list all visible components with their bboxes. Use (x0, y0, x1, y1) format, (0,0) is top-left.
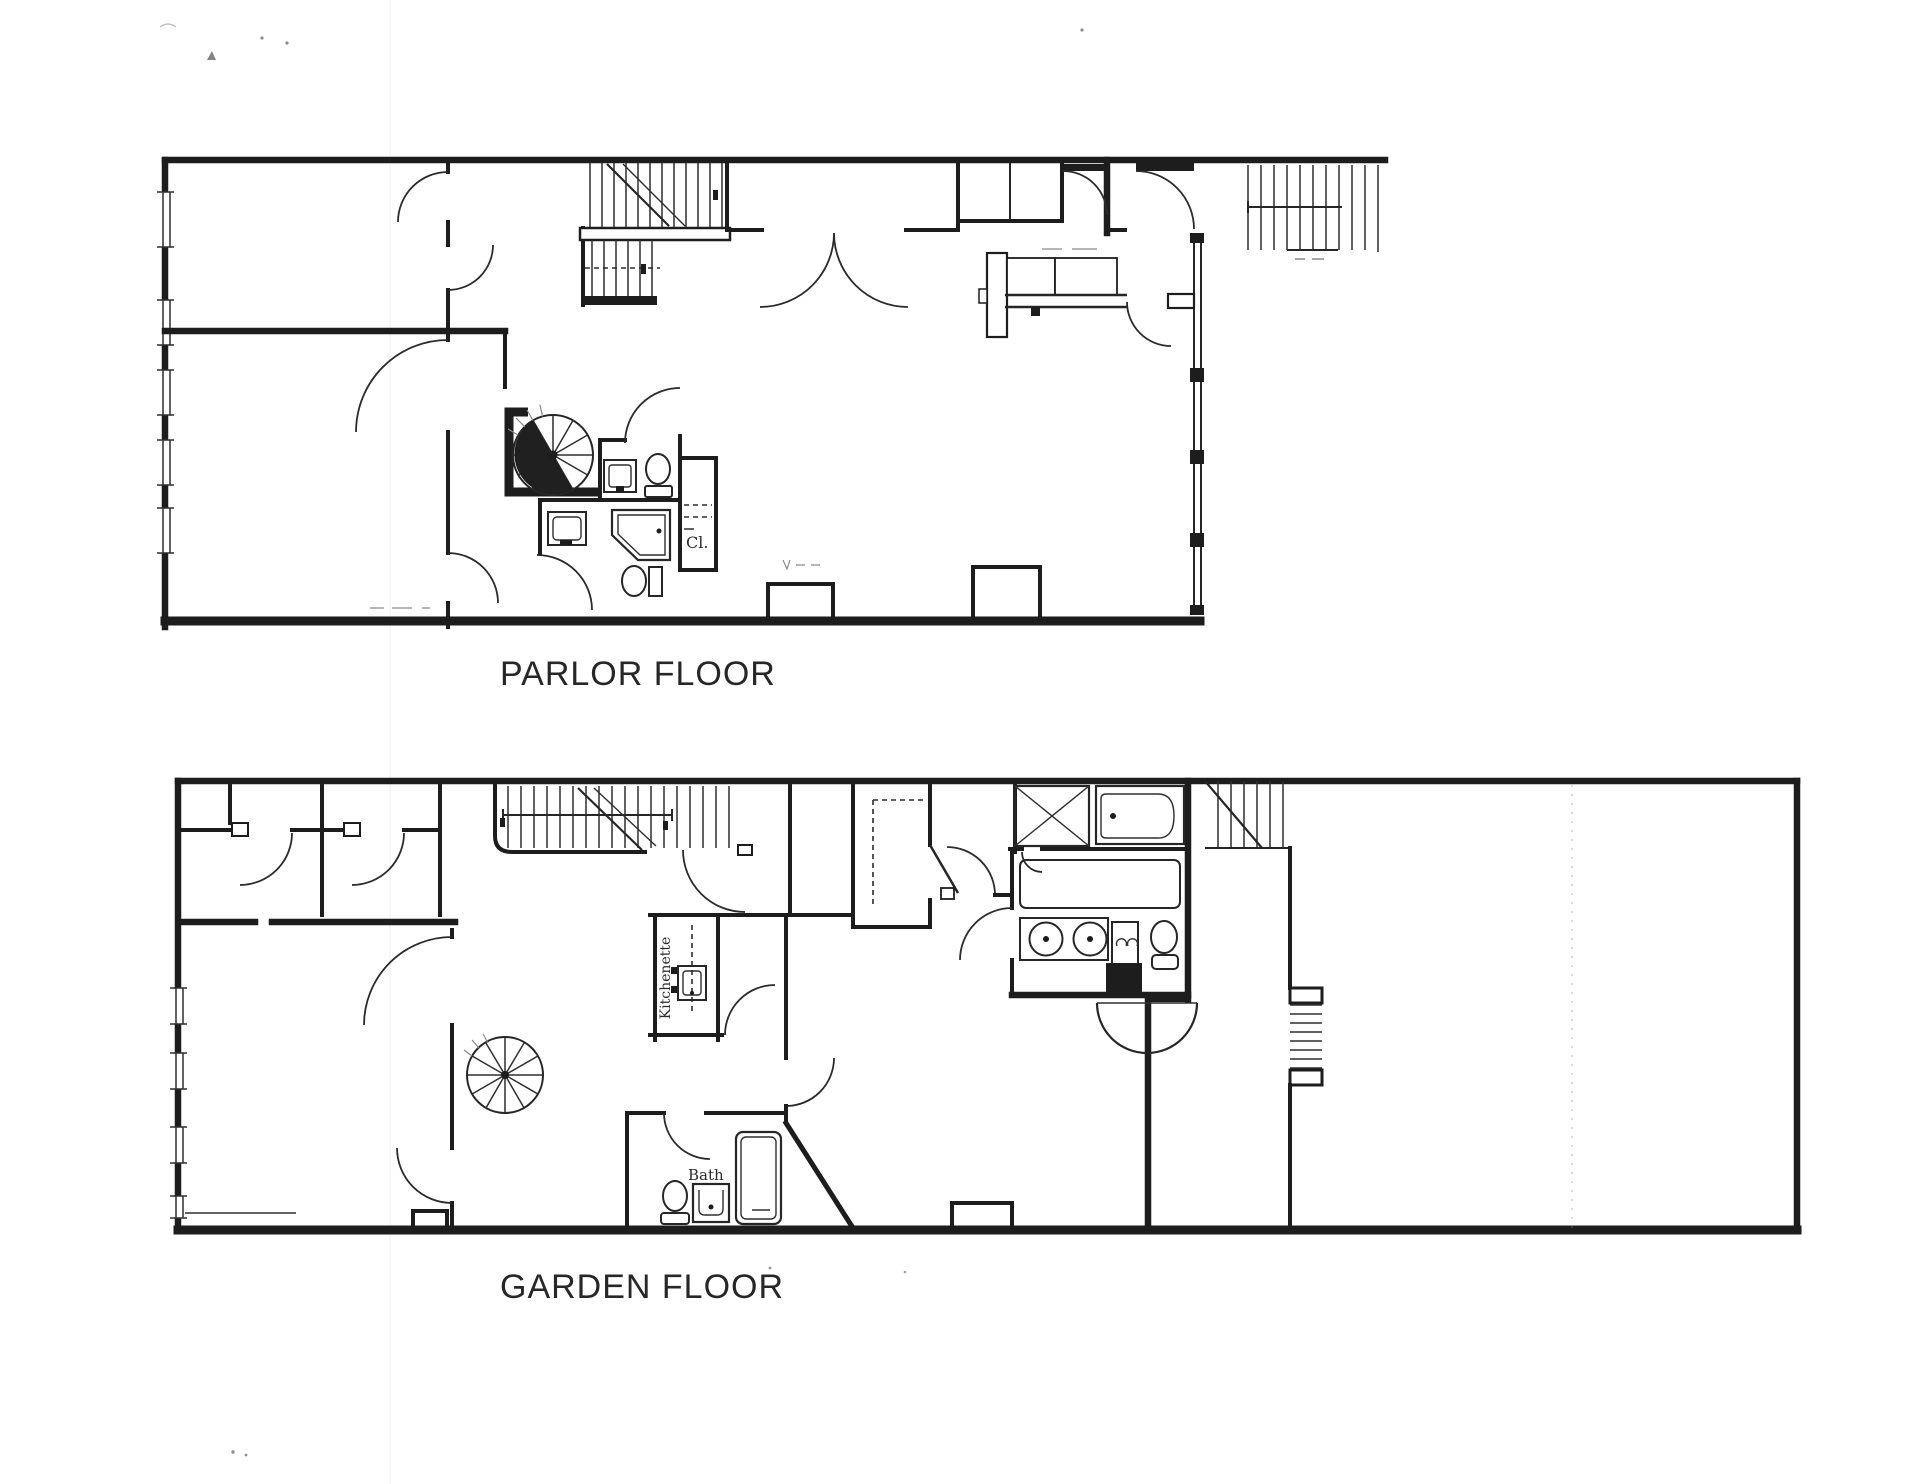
kitchenette-garden: Kitchenette (650, 915, 790, 1058)
scanned-floor-plan-page: { "background": "#ffffff", "ink": "#1f1f… (0, 0, 1920, 1484)
closet-label: Cl. (686, 533, 708, 552)
toilet-icon (645, 454, 672, 497)
main-staircase-icon-parlor (580, 160, 730, 305)
sink-icon (604, 460, 636, 492)
master-bath-garden (960, 783, 1197, 1053)
center-rooms-garden (364, 930, 853, 1228)
bathtub-icon (736, 1132, 781, 1224)
bathroom-parlor (537, 500, 680, 610)
stoop-stairs-icon-parlor (1248, 165, 1378, 259)
sink-icon (548, 512, 586, 545)
bathtub-icon (1096, 786, 1184, 844)
bath-room-garden: Bath (627, 1113, 786, 1226)
exterior-walls-garden (178, 781, 1797, 1230)
floor-title-garden: GARDEN FLOOR (500, 1268, 784, 1306)
front-closets-garden (183, 786, 455, 922)
sink-icon (671, 966, 706, 1000)
vanity-mirror (1020, 860, 1180, 908)
hall-closet-parlor (958, 160, 1062, 227)
toilet-icon (1151, 921, 1178, 969)
double-vanity-sinks (1020, 918, 1108, 960)
closet-cl-parlor: Cl. (680, 458, 716, 570)
rear-yard-garden (185, 781, 1572, 1230)
wardrobe-unit-parlor (979, 249, 1194, 346)
cabinet-icon (1112, 922, 1138, 966)
hall-wall-double-doors-parlor (727, 230, 958, 307)
floor-plan-document: Cl. PARLOR FLOOR (0, 0, 1920, 1484)
yard-side-steps-icon (1290, 848, 1322, 1230)
bath-label: Bath (688, 1166, 724, 1184)
wall-fill (1106, 963, 1142, 993)
window-wall-right-parlor (1190, 233, 1204, 615)
spiral-stair-icon-parlor (508, 405, 601, 495)
floor-plan-garden: Kitchenette (170, 781, 1797, 1306)
sink-icon (693, 1184, 729, 1222)
scan-artifacts (160, 0, 1084, 1484)
kitchenette-label: Kitchenette (658, 937, 674, 1020)
wc-room-parlor (600, 388, 680, 570)
toilet-icon (661, 1181, 689, 1224)
faint-marks-parlor (370, 560, 820, 608)
main-staircase-icon-garden (495, 786, 853, 915)
exterior-stairs-icon (1205, 781, 1290, 848)
floor-title-parlor: PARLOR FLOOR (500, 655, 776, 693)
vestibule-entry-parlor (1063, 160, 1194, 233)
door-arcs-left-parlor (356, 172, 498, 603)
floor-plan-parlor: Cl. PARLOR FLOOR (157, 160, 1385, 693)
corner-shower-icon (612, 510, 670, 560)
walkin-closet-garden (853, 783, 1012, 927)
interior-walls-left-parlor (165, 160, 505, 627)
spiral-stair-icon-garden (464, 1034, 543, 1113)
toilet-icon (622, 566, 662, 596)
